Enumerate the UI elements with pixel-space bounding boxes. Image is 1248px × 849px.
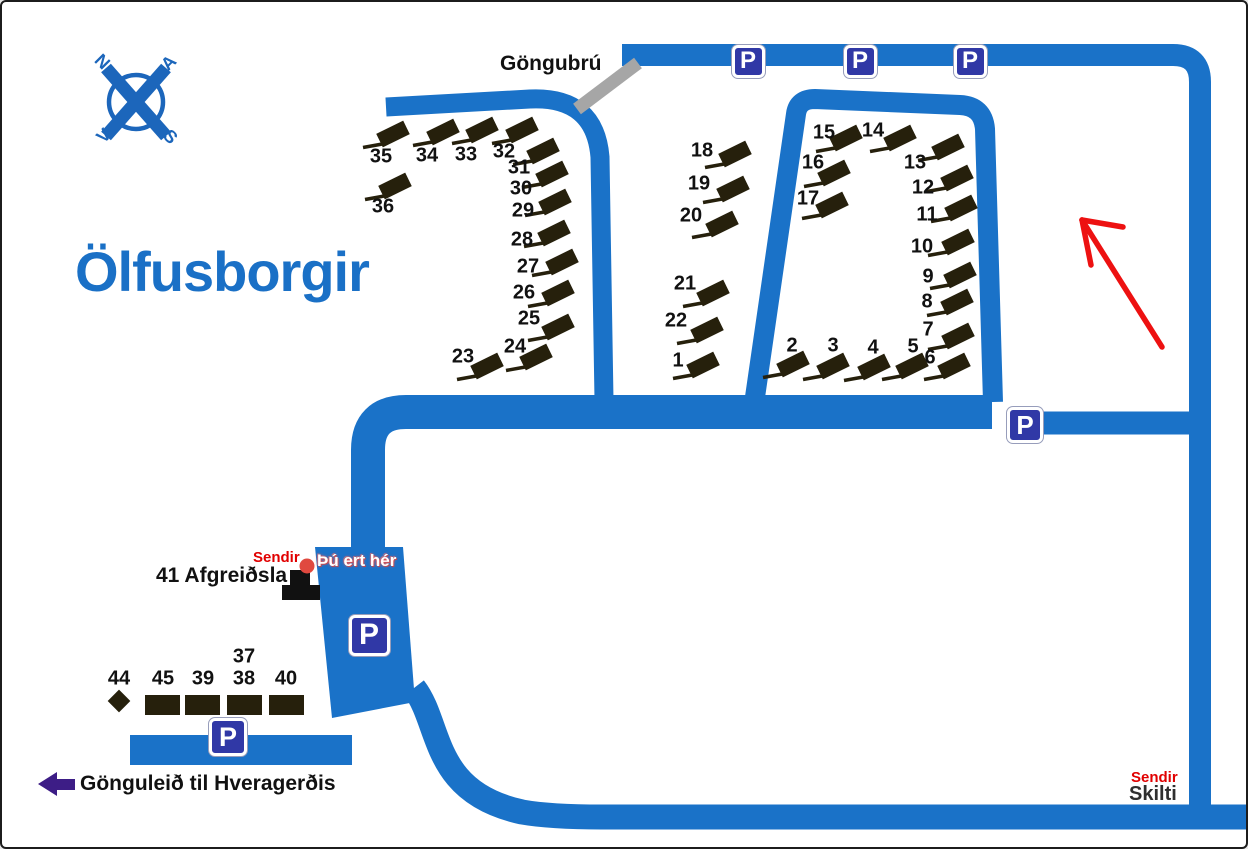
cabin-label-16: 16 bbox=[802, 152, 824, 175]
parking-sign-2: P bbox=[844, 45, 877, 78]
site-map: 3534333231302928272625242336181920212211… bbox=[0, 0, 1248, 849]
cabin-label-6: 6 bbox=[924, 347, 935, 370]
cabin-label-21: 21 bbox=[674, 273, 696, 296]
cabin-label-29: 29 bbox=[512, 200, 534, 223]
cabin-label-26: 26 bbox=[513, 282, 535, 305]
cabin-label-20: 20 bbox=[680, 205, 702, 228]
cabin-label-33: 33 bbox=[455, 144, 477, 167]
cabin-label-22: 22 bbox=[665, 310, 687, 333]
cabin-label-3: 3 bbox=[827, 335, 838, 358]
parking-sign-1: P bbox=[732, 45, 765, 78]
units-layer: 3534333231302928272625242336181920212211… bbox=[2, 2, 1246, 847]
unit-flat-39 bbox=[185, 695, 220, 715]
cabin-label-30: 30 bbox=[510, 178, 532, 201]
cabin-label-5: 5 bbox=[907, 336, 918, 359]
cabin-label-7: 7 bbox=[922, 319, 933, 342]
cabin-label-25: 25 bbox=[518, 308, 540, 331]
cabin-label-14: 14 bbox=[862, 120, 884, 143]
unit-flat-38 bbox=[227, 695, 262, 715]
walking-path-label: Gönguleið til Hveragerðis bbox=[80, 772, 336, 796]
cabin-label-28: 28 bbox=[511, 229, 533, 252]
cabin-label-24: 24 bbox=[504, 336, 526, 359]
unit-label-44: 44 bbox=[108, 668, 130, 691]
parking-sign-5: P bbox=[349, 615, 390, 656]
cabin-label-13: 13 bbox=[904, 152, 926, 175]
parking-sign-6: P bbox=[209, 718, 247, 756]
unit-diamond-44 bbox=[108, 690, 131, 713]
unit-label-45: 45 bbox=[152, 668, 174, 691]
parking-sign-4: P bbox=[1007, 407, 1043, 443]
cabin-label-1: 1 bbox=[672, 350, 683, 373]
footbridge-label: Göngubrú bbox=[500, 52, 601, 76]
cabin-label-12: 12 bbox=[912, 177, 934, 200]
unit-label-39: 39 bbox=[192, 668, 214, 691]
cabin-label-17: 17 bbox=[797, 188, 819, 211]
cabin-label-4: 4 bbox=[867, 337, 878, 360]
unit-label-37: 37 bbox=[233, 646, 255, 669]
cabin-label-10: 10 bbox=[911, 236, 933, 259]
cabin-label-11: 11 bbox=[916, 204, 937, 227]
cabin-label-9: 9 bbox=[922, 266, 933, 289]
cabin-label-18: 18 bbox=[691, 140, 713, 163]
cabin-label-35: 35 bbox=[370, 146, 392, 169]
cabin-icon-10 bbox=[926, 226, 976, 258]
site-title: Ölfusborgir bbox=[75, 239, 369, 304]
cabin-label-15: 15 bbox=[813, 122, 835, 145]
reception-label: 41 Afgreiðsla bbox=[156, 564, 287, 588]
unit-label-38: 38 bbox=[233, 668, 255, 691]
cabin-label-19: 19 bbox=[688, 173, 710, 196]
sign-label: Skilti bbox=[1129, 783, 1177, 806]
cabin-label-8: 8 bbox=[921, 291, 932, 314]
you-are-here-label: Þú ert hér bbox=[317, 551, 396, 571]
cabin-label-2: 2 bbox=[786, 335, 797, 358]
unit-flat-40 bbox=[269, 695, 304, 715]
cabin-label-23: 23 bbox=[452, 346, 474, 369]
cabin-icon-5 bbox=[880, 350, 930, 382]
unit-flat-45 bbox=[145, 695, 180, 715]
parking-sign-3: P bbox=[954, 45, 987, 78]
cabin-label-34: 34 bbox=[416, 145, 438, 168]
cabin-label-31: 31 bbox=[508, 157, 530, 180]
cabin-label-27: 27 bbox=[517, 256, 539, 279]
cabin-label-36: 36 bbox=[372, 196, 394, 219]
unit-label-40: 40 bbox=[275, 668, 297, 691]
